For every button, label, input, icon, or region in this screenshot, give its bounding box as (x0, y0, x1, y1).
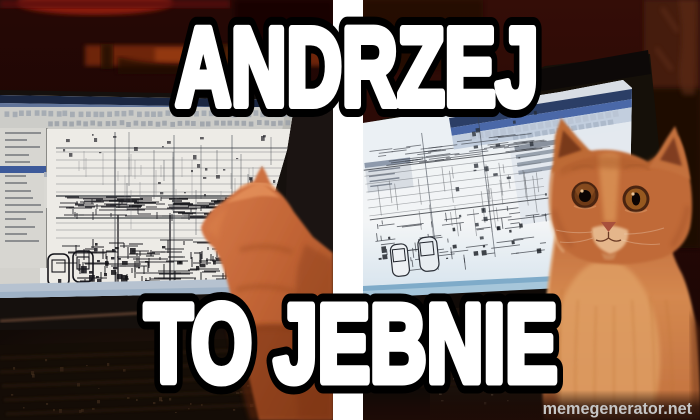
svg-text:memegenerator.net: memegenerator.net (543, 400, 693, 418)
svg-text:TO JEBNIE: TO JEBNIE (145, 283, 558, 406)
svg-text:ANDRZEJ: ANDRZEJ (176, 6, 539, 129)
